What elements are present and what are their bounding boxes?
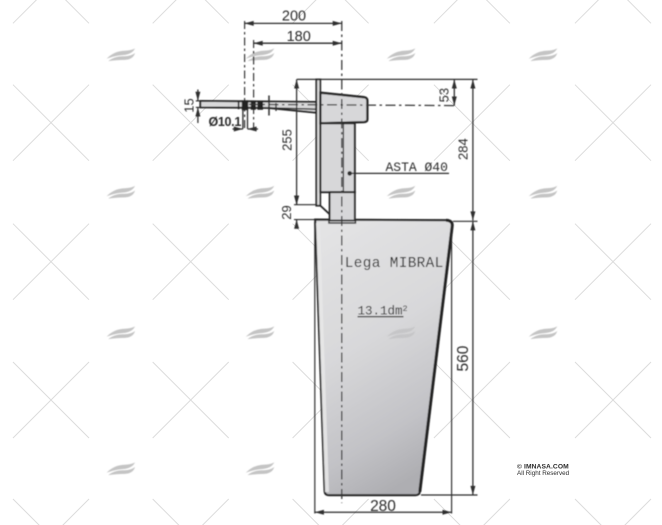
- svg-text:29: 29: [279, 205, 294, 219]
- svg-text:ASTA Ø40: ASTA Ø40: [386, 160, 448, 175]
- svg-text:200: 200: [282, 8, 306, 24]
- svg-text:280: 280: [370, 498, 396, 515]
- svg-text:15: 15: [181, 98, 196, 112]
- svg-text:© IMNASA.COM: © IMNASA.COM: [517, 462, 569, 470]
- svg-text:284: 284: [456, 138, 471, 160]
- svg-text:560: 560: [455, 345, 472, 371]
- svg-text:180: 180: [287, 29, 311, 45]
- svg-text:Lega MIBRAL: Lega MIBRAL: [345, 256, 444, 272]
- svg-text:255: 255: [280, 129, 295, 151]
- svg-text:53: 53: [437, 88, 452, 102]
- svg-text:All Right Reserved: All Right Reserved: [517, 470, 570, 477]
- svg-text:Ø10.1: Ø10.1: [208, 115, 241, 129]
